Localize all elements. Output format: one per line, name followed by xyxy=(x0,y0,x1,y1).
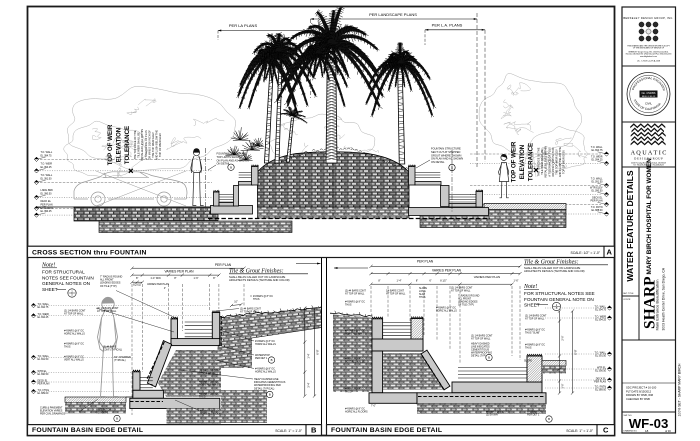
svg-text:PER PLAN: PER PLAN xyxy=(38,382,50,385)
svg-text:8": 8" xyxy=(136,277,138,280)
svg-text:EL 391.50: EL 391.50 xyxy=(595,354,606,357)
svg-text:8": 8" xyxy=(213,277,215,280)
svg-text:EL 391.50: EL 391.50 xyxy=(591,181,603,184)
svg-text:HORIZ ALL WALLS: HORIZ ALL WALLS xyxy=(255,371,276,374)
svg-text:2'-8": 2'-8" xyxy=(307,322,311,327)
svg-text:C: C xyxy=(603,426,609,435)
svg-text:1'-4": 1'-4" xyxy=(397,280,402,283)
svg-text:EL 394.75: EL 394.75 xyxy=(38,306,49,309)
svg-text:TOP OF WEIR ELEV: TOP OF WEIR ELEV xyxy=(562,150,566,174)
svg-text:PER DET 1: PER DET 1 xyxy=(527,414,540,417)
svg-text:THUS "SLAB": THUS "SLAB" xyxy=(525,332,540,335)
svg-text:SDC PROJECT # 16-100: SDC PROJECT # 16-100 xyxy=(626,386,657,390)
svg-text:THUS: THUS xyxy=(199,396,206,399)
svg-text:EL 388.00: EL 388.00 xyxy=(591,209,603,212)
svg-text:1'-0": 1'-0" xyxy=(561,383,565,388)
svg-text:VERT ALL WALLS: VERT ALL WALLS xyxy=(64,359,84,362)
svg-text:THUS: THUS xyxy=(345,391,352,394)
svg-text:ARCHITECTS DETAILS (TEXTURE AN: ARCHITECTS DETAILS (TEXTURE AND COLOR) xyxy=(229,278,290,282)
svg-text:3'-4": 3'-4" xyxy=(307,382,311,387)
svg-text:THUS: THUS xyxy=(345,304,352,307)
svg-text:A TOLERANCE OF PLUS: A TOLERANCE OF PLUS xyxy=(144,130,148,160)
svg-text:PER PLAN: PER PLAN xyxy=(215,263,232,267)
svg-text:B: B xyxy=(271,358,273,362)
svg-text:PER DET 1: PER DET 1 xyxy=(255,357,268,360)
svg-text:EQ EQ: EQ EQ xyxy=(133,284,141,287)
svg-text:TOP OF WEIR ELEV: TOP OF WEIR ELEV xyxy=(158,133,162,157)
svg-text:VARIES PER PLAN: VARIES PER PLAN xyxy=(147,283,169,286)
svg-text:No. C54056: No. C54056 xyxy=(642,91,656,95)
svg-text:AND FLUSH BELOW THE: AND FLUSH BELOW THE xyxy=(155,130,159,160)
svg-text:B: B xyxy=(451,166,453,170)
svg-text:HORIZ ALL WALLS: HORIZ ALL WALLS xyxy=(255,343,276,346)
svg-text:AT TOP OF WALL: AT TOP OF WALL xyxy=(345,293,365,296)
svg-text:CROSS SECTION thru FOUNTAIN: CROSS SECTION thru FOUNTAIN xyxy=(32,249,147,256)
svg-text:A Q U A T I C: A Q U A T I C xyxy=(631,150,667,157)
svg-text:TILE WEIR SHALL BE: TILE WEIR SHALL BE xyxy=(540,149,544,175)
svg-text:AT TOP OF WALL: AT TOP OF WALL xyxy=(525,318,545,321)
svg-text:EL 391.50: EL 391.50 xyxy=(41,177,53,180)
svg-text:EL 394.25: EL 394.25 xyxy=(595,318,606,321)
svg-text:AT TOP OF WALL: AT TOP OF WALL xyxy=(451,290,471,293)
svg-text:EL 394.75: EL 394.75 xyxy=(595,308,606,311)
svg-text:VARIES PER PLAN: VARIES PER PLAN xyxy=(164,270,194,274)
svg-text:100% SET - SHARP MARY BIRCH: 100% SET - SHARP MARY BIRCH xyxy=(678,363,682,416)
svg-text:EL 390.50: EL 390.50 xyxy=(41,192,53,195)
svg-text:EL 389.00: EL 389.00 xyxy=(38,392,49,395)
svg-text:DETAIL (TYPICAL): DETAIL (TYPICAL) xyxy=(254,387,275,390)
svg-text:EL 391.50: EL 391.50 xyxy=(38,358,49,361)
svg-text:4": 4" xyxy=(164,287,166,290)
svg-text:AT TOP OF WALL: AT TOP OF WALL xyxy=(386,293,406,296)
svg-text:EL 394.25: EL 394.25 xyxy=(38,316,49,319)
svg-text:REN. 6-30-13: REN. 6-30-13 xyxy=(642,96,656,98)
svg-text:SECT CUT AT STEPPED: SECT CUT AT STEPPED xyxy=(431,150,460,154)
svg-text:ON DETAIL: ON DETAIL xyxy=(431,160,445,164)
svg-text:TOP OF WEIR: TOP OF WEIR xyxy=(107,124,114,165)
svg-text:(TYPICAL): (TYPICAL) xyxy=(114,359,126,362)
svg-text:CHECKED BY RNB: CHECKED BY RNB xyxy=(626,397,650,401)
svg-text:EL 389.00: EL 389.00 xyxy=(595,388,606,391)
svg-text:THUS: THUS xyxy=(525,347,532,350)
svg-text:1'-4" MIN: 1'-4" MIN xyxy=(150,277,160,280)
svg-text:NOTES SEE FOUNTAIN: NOTES SEE FOUNTAIN xyxy=(42,275,94,280)
svg-text:EL 394.25: EL 394.25 xyxy=(41,166,53,169)
svg-text:18: 18 xyxy=(645,429,649,433)
svg-text:THE TOP WEIR ELEV: THE TOP WEIR ELEV xyxy=(555,149,559,175)
svg-text:GENERAL NOTES ON: GENERAL NOTES ON xyxy=(42,281,90,286)
svg-text:PER PLAN: PER PLAN xyxy=(417,260,434,264)
svg-text:TOLERANCE: TOLERANCE xyxy=(528,143,535,181)
svg-text:ELEVATION: ELEVATION xyxy=(116,127,123,162)
svg-text:THUS: THUS xyxy=(419,296,426,299)
svg-text:SHEET: SHEET xyxy=(524,303,540,308)
svg-text:B: B xyxy=(488,356,490,360)
svg-text:B: B xyxy=(548,417,550,421)
svg-text:PLT DATE 8/15/2012: PLT DATE 8/15/2012 xyxy=(626,389,652,393)
svg-text:TOP LIMITS SHOWN: TOP LIMITS SHOWN xyxy=(217,155,242,159)
svg-text:EL 390.50: EL 390.50 xyxy=(591,190,603,193)
svg-text:1'-6": 1'-6" xyxy=(514,280,519,283)
svg-text:DRAWING NO.: DRAWING NO. xyxy=(624,430,638,433)
svg-text:FOUNTAIN GENERAL NOTE ON: FOUNTAIN GENERAL NOTE ON xyxy=(524,297,594,302)
svg-text:SLOPE: SLOPE xyxy=(524,360,532,363)
svg-text:BERKELEY DESIGN GROUP, INC.: BERKELEY DESIGN GROUP, INC. xyxy=(623,16,673,20)
svg-text:VARIES PER PLAN: VARIES PER PLAN xyxy=(432,268,462,272)
svg-text:AT TOP OF WALL: AT TOP OF WALL xyxy=(471,338,491,341)
svg-text:PER L.A. PLANS: PER L.A. PLANS xyxy=(432,23,463,28)
svg-text:1'-4": 1'-4" xyxy=(307,353,311,358)
svg-text:OF THE INSTRUMENT OF SERVICE O: OF THE INSTRUMENT OF SERVICE OF xyxy=(633,48,664,50)
svg-text:AT TOP OF WALL: AT TOP OF WALL xyxy=(64,313,84,316)
svg-text:ON PLAN AND AS SHOWN: ON PLAN AND AS SHOWN xyxy=(431,157,463,161)
svg-text:SHT. TITLE: SHT. TITLE xyxy=(623,293,634,295)
svg-text:8 1/2": 8 1/2" xyxy=(440,280,447,283)
svg-text:FOUNTAIN STRUCTURE: FOUNTAIN STRUCTURE xyxy=(431,147,461,151)
svg-text:2'-0": 2'-0" xyxy=(561,335,565,340)
svg-text:SHEET: SHEET xyxy=(42,287,58,292)
svg-text:CONT (TYPICAL): CONT (TYPICAL) xyxy=(103,349,122,352)
svg-text:B: B xyxy=(269,393,271,397)
svg-text:TOP OF WEIR: TOP OF WEIR xyxy=(511,141,518,182)
svg-text:FOR STRUCTURAL NOTES SEE: FOR STRUCTURAL NOTES SEE xyxy=(524,291,595,296)
svg-text:EL 394.75: EL 394.75 xyxy=(41,154,53,157)
svg-text:FOUNTAIN STRUCTURE: FOUNTAIN STRUCTURE xyxy=(217,152,247,156)
svg-text:THE TOP EDGE OF THE: THE TOP EDGE OF THE xyxy=(133,130,137,159)
svg-text:EL 390.25: EL 390.25 xyxy=(41,210,53,213)
svg-text:TOLERANCE: TOLERANCE xyxy=(124,126,131,164)
svg-text:PER CIVIL DRAWINGS: PER CIVIL DRAWINGS xyxy=(40,413,66,416)
svg-text:HORIZ ALL FLOORS: HORIZ ALL FLOORS xyxy=(345,411,368,414)
svg-text:TILE WEIR SHALL BE: TILE WEIR SHALL BE xyxy=(137,132,141,158)
svg-text:HORIZ ALL WALLS: HORIZ ALL WALLS xyxy=(199,384,220,387)
svg-text:7'-0": 7'-0" xyxy=(371,405,376,408)
svg-text:EL 390.50: EL 390.50 xyxy=(38,373,49,376)
svg-text:THUS: THUS xyxy=(64,346,71,349)
svg-text:A: A xyxy=(607,248,613,257)
svg-text:6'-8": 6'-8" xyxy=(574,349,578,354)
svg-text:www.bdglandarch.com: www.bdglandarch.com xyxy=(640,55,658,58)
svg-text:WF-03: WF-03 xyxy=(629,416,669,431)
svg-text:PER PLAN: PER PLAN xyxy=(590,200,602,203)
svg-text:ON PLAN AND AS SHOWN: ON PLAN AND AS SHOWN xyxy=(217,158,249,162)
svg-text:FOR STRUCTURAL: FOR STRUCTURAL xyxy=(42,270,85,275)
svg-text:INSTALLED LEVEL WITHIN: INSTALLED LEVEL WITHIN xyxy=(544,146,548,178)
svg-text:HORIZ ALL WALLS: HORIZ ALL WALLS xyxy=(436,310,457,313)
svg-text:3003 Health Center Drive, San: 3003 Health Center Drive, San Diego, CA xyxy=(662,267,666,330)
svg-text:AND FLUSH BELOW THE: AND FLUSH BELOW THE xyxy=(558,147,562,177)
svg-text:DRAWN BY RNB, WM: DRAWN BY RNB, WM xyxy=(626,393,654,397)
svg-text:1'-6": 1'-6" xyxy=(194,277,199,280)
svg-text:INSTALLED LEVEL WITHIN: INSTALLED LEVEL WITHIN xyxy=(140,129,144,161)
svg-text:PER DET 1: PER DET 1 xyxy=(96,412,109,415)
svg-text:EL 390.50: EL 390.50 xyxy=(595,369,606,372)
svg-text:8": 8" xyxy=(416,280,418,283)
svg-text:THE TOP WEIR ELEV: THE TOP WEIR ELEV xyxy=(151,132,155,158)
svg-text:B: B xyxy=(311,426,317,435)
svg-text:EL 394.25: EL 394.25 xyxy=(591,159,603,162)
svg-text:DETAIL (TYP): DETAIL (TYP) xyxy=(471,355,486,358)
svg-text:10": 10" xyxy=(234,301,238,304)
svg-text:(2) EA WAY: (2) EA WAY xyxy=(486,414,499,417)
svg-text:FOUNTAIN BASIN EDGE DETAIL: FOUNTAIN BASIN EDGE DETAIL xyxy=(32,427,143,434)
svg-text:A TOLERANCE OF PLUS: A TOLERANCE OF PLUS xyxy=(547,147,551,177)
svg-text:THUS: THUS xyxy=(253,298,260,301)
svg-text:8": 8" xyxy=(378,280,380,283)
svg-text:8": 8" xyxy=(174,277,176,280)
svg-text:PER LA PLANS: PER LA PLANS xyxy=(229,23,258,28)
svg-text:HORIZ ALL WALLS: HORIZ ALL WALLS xyxy=(64,333,85,336)
svg-text:OF TILE (TYP): OF TILE (TYP) xyxy=(100,285,117,288)
svg-text:EL 394.75: EL 394.75 xyxy=(591,149,603,152)
svg-text:FOUNTAIN BASIN EDGE DETAIL: FOUNTAIN BASIN EDGE DETAIL xyxy=(331,427,442,434)
svg-text:PER PLAN: PER PLAN xyxy=(594,380,606,383)
svg-text:AT TOP OF WALL: AT TOP OF WALL xyxy=(240,311,260,314)
svg-text:B: B xyxy=(116,417,118,421)
svg-text:SCALE: 1" = 1'-0": SCALE: 1" = 1'-0" xyxy=(566,429,594,433)
svg-text:ELEVATION: ELEVATION xyxy=(519,144,526,179)
svg-text:MARY BIRCH HOSPITAL FOR WOMEN: MARY BIRCH HOSPITAL FOR WOMEN xyxy=(646,158,653,275)
svg-text:THE TOP EDGE OF THE: THE TOP EDGE OF THE xyxy=(537,147,541,176)
svg-text:WATER FEATURE DETAILS: WATER FEATURE DETAILS xyxy=(625,170,635,282)
svg-text:OR MINUS 1/16 INCH OF: OR MINUS 1/16 INCH OF xyxy=(147,130,151,160)
svg-text:1'-0": 1'-0" xyxy=(417,411,422,414)
svg-text:OF TILE (TYP): OF TILE (TYP) xyxy=(458,304,474,307)
svg-text:B: B xyxy=(230,165,232,169)
svg-text:HORIZ ALL WALLS: HORIZ ALL WALLS xyxy=(345,333,366,336)
svg-text:VERT ALL WALLS: VERT ALL WALLS xyxy=(345,361,365,364)
svg-text:of 30: of 30 xyxy=(665,429,671,433)
svg-text:Main Entrance Beautification: Main Entrance Beautification xyxy=(655,280,660,331)
svg-text:GROUT WHERE SHOWN: GROUT WHERE SHOWN xyxy=(431,153,461,157)
svg-text:LIC. # 2558 C-1275 A-1558: LIC. # 2558 C-1275 A-1558 xyxy=(637,60,660,63)
svg-text:6'-8": 6'-8" xyxy=(316,349,320,354)
svg-text:CONTR: CONTR xyxy=(623,299,631,301)
svg-text:VARIES PER PLAN: VARIES PER PLAN xyxy=(474,275,500,279)
svg-text:CIVIL: CIVIL xyxy=(645,102,652,106)
svg-text:PER LANDSCAPE PLANS: PER LANDSCAPE PLANS xyxy=(369,12,417,17)
svg-text:AT TOP OF WALL: AT TOP OF WALL xyxy=(199,373,219,376)
svg-text:6": 6" xyxy=(429,280,431,283)
svg-text:AT TOP OF WALL: AT TOP OF WALL xyxy=(97,310,117,313)
svg-text:OR MINUS 1/16 INCH OF: OR MINUS 1/16 INCH OF xyxy=(551,147,555,177)
svg-text:SCALE: 1" = 1'-0": SCALE: 1" = 1'-0" xyxy=(275,429,303,433)
svg-text:SCALE: 1/2" = 1'-0": SCALE: 1/2" = 1'-0" xyxy=(570,251,600,255)
svg-text:HORIZ ALL FLOORS: HORIZ ALL FLOORS xyxy=(200,413,223,416)
svg-text:ARCHITECTS DETAILS (TEXTURE AN: ARCHITECTS DETAILS (TEXTURE AND COLOR) xyxy=(524,269,585,273)
